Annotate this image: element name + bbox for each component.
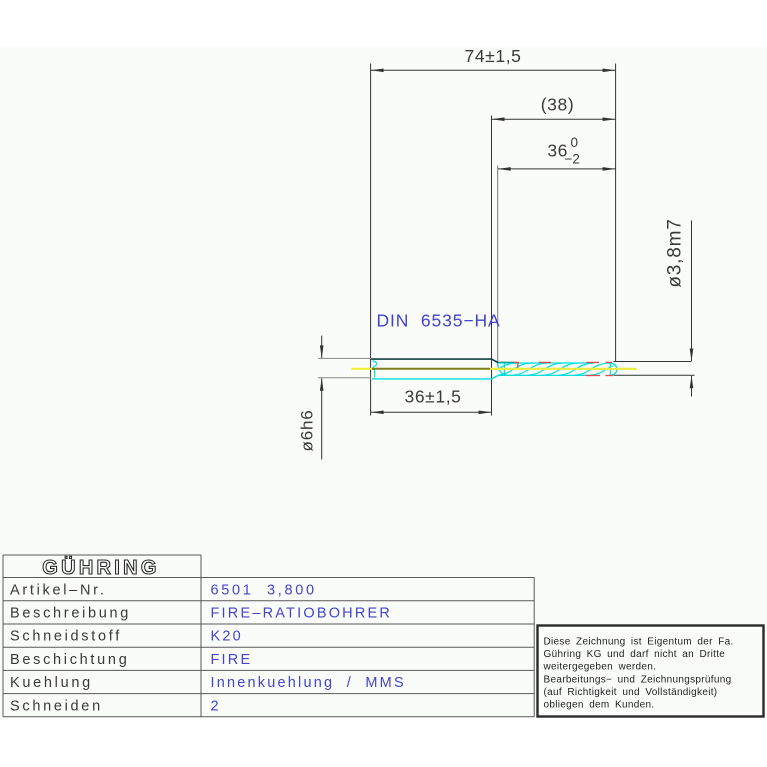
svg-text:Bearbeitungs− und Zeichnungspr: Bearbeitungs− und Zeichnungsprüfung	[544, 674, 732, 685]
svg-text:36±1,5: 36±1,5	[405, 387, 462, 407]
svg-text:74±1,5: 74±1,5	[465, 46, 522, 66]
svg-text:DIN 6535−HA: DIN 6535−HA	[377, 311, 501, 331]
svg-text:Beschichtung: Beschichtung	[10, 652, 129, 668]
svg-text:(38): (38)	[541, 95, 575, 115]
svg-text:K20: K20	[211, 629, 243, 645]
svg-text:Gühring KG und darf nicht an D: Gühring KG und darf nicht an Dritte	[544, 649, 726, 660]
svg-text:ø3,8m7: ø3,8m7	[665, 218, 686, 287]
svg-text:FIRE–RATIOBOHRER: FIRE–RATIOBOHRER	[211, 606, 393, 622]
svg-text:Schneiden: Schneiden	[10, 698, 103, 714]
svg-text:Kuehlung: Kuehlung	[10, 675, 93, 691]
svg-text:Schneidstoff: Schneidstoff	[10, 629, 122, 645]
svg-text:weitergegeben werden.: weitergegeben werden.	[543, 662, 657, 673]
svg-text:0: 0	[571, 135, 579, 150]
svg-text:obliegen dem Kunden.: obliegen dem Kunden.	[544, 699, 655, 710]
svg-text:Beschreibung: Beschreibung	[10, 606, 131, 622]
svg-text:2: 2	[211, 698, 221, 714]
svg-text:Artikel–Nr.: Artikel–Nr.	[10, 582, 107, 598]
svg-text:ø6h6: ø6h6	[298, 410, 317, 452]
svg-text:GÜHRING: GÜHRING	[42, 556, 160, 579]
svg-text:FIRE: FIRE	[211, 652, 253, 668]
svg-text:6501 3,800: 6501 3,800	[211, 582, 317, 598]
svg-text:Innenkuehlung / MMS: Innenkuehlung / MMS	[211, 675, 406, 691]
svg-text:(auf Richtigkeit und Vollständ: (auf Richtigkeit und Vollständigkeit)	[544, 687, 718, 698]
svg-text:−2: −2	[565, 152, 580, 167]
svg-text:Diese Zeichnung ist Eigentum d: Diese Zeichnung ist Eigentum der Fa.	[544, 637, 734, 648]
